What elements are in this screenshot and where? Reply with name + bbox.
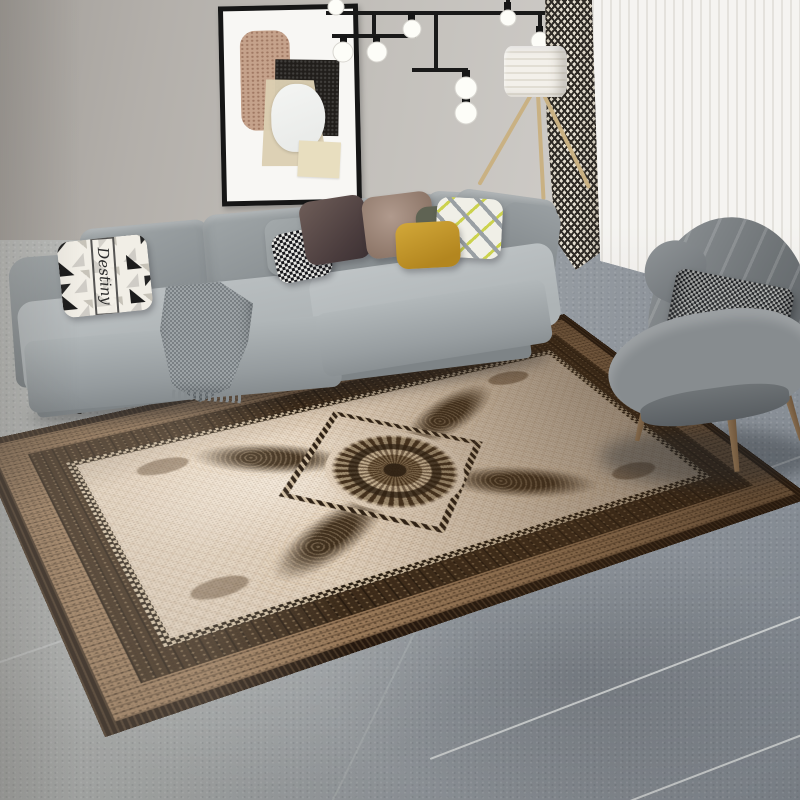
rug-corner-motif xyxy=(186,571,254,605)
rug-corner-motif xyxy=(133,454,193,480)
living-room-photo: Destiny xyxy=(0,0,800,800)
art-shape-sheet xyxy=(297,140,341,178)
script-pillow-text: Destiny xyxy=(90,236,119,315)
script-pillow: Destiny xyxy=(56,234,153,319)
mustard-pillow xyxy=(395,220,461,269)
armchair-shadow xyxy=(600,428,800,486)
floor-lamp-shade xyxy=(504,46,567,97)
